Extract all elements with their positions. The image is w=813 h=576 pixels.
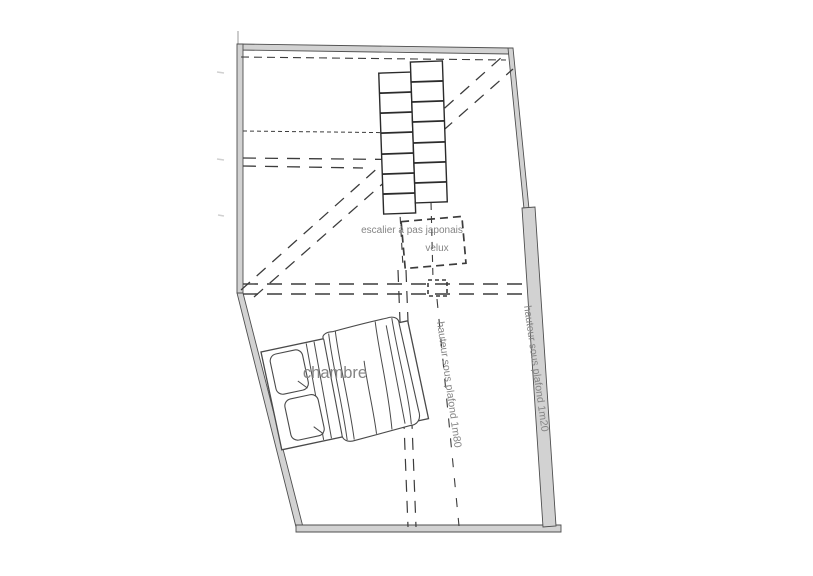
stair-step-divider	[379, 92, 411, 93]
stair-step-divider	[412, 121, 444, 122]
wall-bottom	[296, 525, 561, 532]
room-label: chambre	[303, 364, 367, 382]
stair-step-divider	[381, 132, 413, 133]
ceiling-height-1m80-label: hauteur sous plafond 1m80	[434, 321, 464, 449]
stair-step-divider	[380, 112, 412, 113]
survey-ticks	[217, 31, 238, 216]
bed	[260, 314, 430, 456]
tick-mark	[217, 72, 224, 73]
staircase	[378, 61, 447, 214]
stair-step-divider	[414, 162, 446, 163]
wall-left-upper	[237, 44, 243, 293]
stair-step-divider	[383, 193, 415, 194]
stair-step-divider	[415, 182, 447, 183]
velux-label: velux	[425, 243, 448, 254]
stair-step-divider	[411, 81, 443, 82]
tick-mark	[217, 159, 224, 160]
ceiling-line-under-top-wall	[241, 57, 506, 60]
tick-mark	[218, 215, 224, 216]
wall-top	[238, 44, 509, 54]
stair-step-divider	[412, 101, 444, 102]
wall-right-upper	[508, 48, 529, 209]
floor-plan-page: chambre escalier à pas japonais velux ha…	[0, 0, 813, 576]
stair-step-divider	[382, 173, 414, 174]
ceiling-line-pair-lower	[243, 166, 363, 168]
floor-plan-drawing: chambre escalier à pas japonais velux ha…	[0, 0, 813, 576]
stair-step-divider	[382, 153, 414, 154]
roof-slope-diagonal-1	[241, 56, 503, 290]
stair-label: escalier à pas japonais	[361, 225, 463, 236]
stair-step-divider	[413, 142, 445, 143]
